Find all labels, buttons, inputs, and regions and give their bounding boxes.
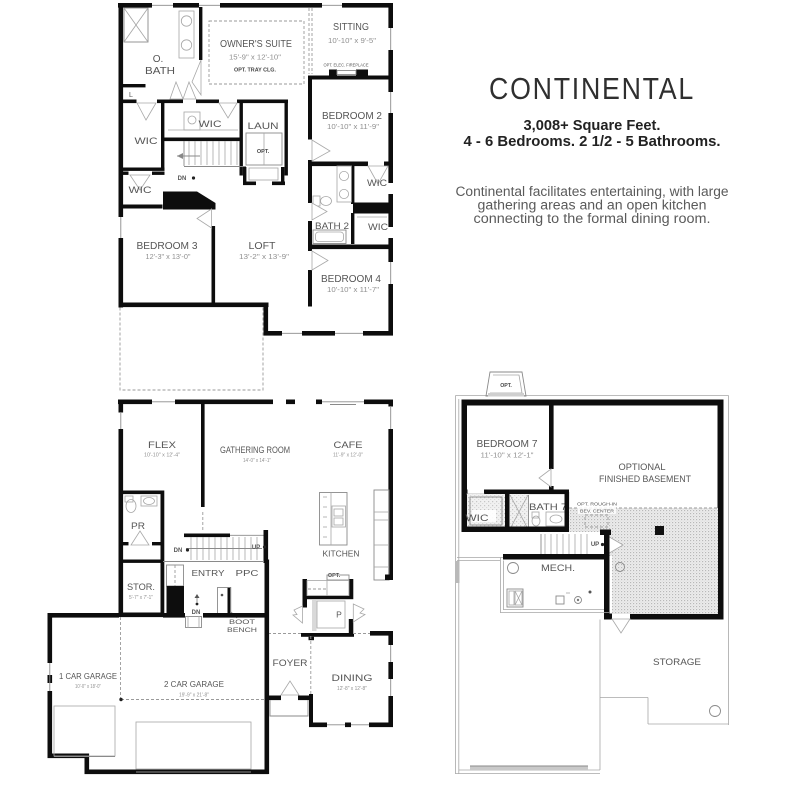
svg-text:BEDROOM 2: BEDROOM 2 — [322, 110, 382, 122]
svg-text:BEDROOM 3: BEDROOM 3 — [137, 240, 198, 252]
svg-text:OPT.: OPT. — [500, 383, 512, 389]
svg-text:10'-10" x 11'-7": 10'-10" x 11'-7" — [327, 287, 380, 294]
svg-text:STORAGE: STORAGE — [653, 657, 701, 668]
svg-text:UP: UP — [591, 542, 599, 548]
svg-text:12'-8" x 12'-8": 12'-8" x 12'-8" — [337, 686, 367, 692]
svg-text:MECH.: MECH. — [541, 563, 575, 573]
svg-text:19'-9" x 21'-8": 19'-9" x 21'-8" — [179, 693, 209, 699]
svg-text:STOR.: STOR. — [127, 582, 155, 592]
svg-text:LOFT: LOFT — [249, 240, 277, 252]
svg-text:BEV. CENTER: BEV. CENTER — [580, 509, 614, 514]
svg-text:OPTIONAL: OPTIONAL — [619, 462, 666, 473]
svg-text:FLEX: FLEX — [148, 440, 177, 451]
svg-text:GATHERING ROOM: GATHERING ROOM — [220, 445, 290, 456]
svg-text:BATH 2: BATH 2 — [315, 221, 349, 231]
svg-text:BATH 7: BATH 7 — [529, 502, 567, 512]
svg-text:BEDROOM 7: BEDROOM 7 — [477, 438, 538, 450]
svg-text:SITTING: SITTING — [333, 21, 369, 33]
svg-text:3,008+ Square Feet.: 3,008+ Square Feet. — [524, 117, 661, 134]
svg-text:DN: DN — [178, 176, 187, 182]
svg-text:DN: DN — [174, 548, 183, 554]
svg-text:CAFE: CAFE — [334, 440, 363, 451]
svg-text:L: L — [129, 92, 133, 99]
svg-text:10'-0" x 18'-0": 10'-0" x 18'-0" — [75, 684, 101, 690]
svg-text:OPT.: OPT. — [328, 573, 341, 579]
svg-text:4 - 6 Bedrooms. 2 1/2 - 5 Bat: 4 - 6 Bedrooms. 2 1/2 - 5 Bathrooms. — [464, 133, 721, 150]
svg-text:PR: PR — [131, 521, 146, 531]
svg-text:OPT.: OPT. — [257, 149, 270, 155]
svg-text:11'-10" x 12'-1": 11'-10" x 12'-1" — [481, 453, 535, 460]
svg-text:WIC: WIC — [135, 136, 158, 147]
svg-text:OPT. TRAY CLG.: OPT. TRAY CLG. — [234, 68, 276, 74]
svg-text:WIC: WIC — [368, 222, 389, 232]
svg-text:10'-10" x 9'-5": 10'-10" x 9'-5" — [328, 38, 377, 45]
svg-text:10'-10" x 11'-9": 10'-10" x 11'-9" — [327, 124, 380, 131]
svg-text:10'-10" x 12'-4": 10'-10" x 12'-4" — [144, 453, 180, 459]
svg-text:13'-2" x 13'-9": 13'-2" x 13'-9" — [239, 254, 290, 261]
svg-text:ENTRY: ENTRY — [192, 568, 225, 578]
svg-text:P: P — [336, 610, 342, 620]
svg-text:connecting to the formal dinin: connecting to the formal dining room. — [474, 211, 711, 226]
svg-text:FOYER: FOYER — [273, 658, 309, 668]
svg-text:11'-9" x 12'-0": 11'-9" x 12'-0" — [333, 453, 363, 459]
svg-text:FINISHED BASEMENT: FINISHED BASEMENT — [599, 474, 691, 485]
svg-text:UP: UP — [252, 545, 260, 551]
svg-text:WIC: WIC — [367, 178, 388, 188]
svg-text:BOOT: BOOT — [229, 619, 255, 626]
svg-text:OWNER'S SUITE: OWNER'S SUITE — [220, 38, 292, 50]
svg-text:BATH: BATH — [145, 66, 175, 77]
svg-text:BEDROOM 4: BEDROOM 4 — [321, 273, 381, 285]
svg-text:LAUN: LAUN — [248, 121, 279, 132]
svg-text:DINING: DINING — [332, 673, 373, 684]
svg-text:PPC: PPC — [236, 568, 259, 578]
svg-text:OPT. ELEC. FIREPLACE: OPT. ELEC. FIREPLACE — [324, 63, 369, 69]
svg-text:BENCH: BENCH — [227, 627, 257, 634]
svg-text:OPT. ROUGH-IN: OPT. ROUGH-IN — [577, 502, 617, 507]
svg-text:O.: O. — [153, 54, 164, 65]
svg-text:CONTINENTAL: CONTINENTAL — [489, 71, 695, 106]
svg-text:WIC: WIC — [129, 185, 152, 196]
svg-text:14'-0" x 14'-1": 14'-0" x 14'-1" — [243, 458, 271, 464]
svg-text:12'-3" x 13'-0": 12'-3" x 13'-0" — [146, 254, 192, 261]
svg-text:WIC: WIC — [199, 119, 222, 130]
svg-text:5'-7" x 7'-1": 5'-7" x 7'-1" — [129, 595, 153, 601]
svg-text:1 CAR GARAGE: 1 CAR GARAGE — [59, 671, 117, 681]
svg-text:WIC: WIC — [466, 513, 490, 523]
svg-text:2 CAR GARAGE: 2 CAR GARAGE — [164, 679, 224, 689]
svg-text:DN: DN — [192, 610, 201, 616]
svg-text:15'-9" x 12'-10": 15'-9" x 12'-10" — [229, 55, 282, 62]
svg-text:KITCHEN: KITCHEN — [323, 549, 360, 559]
